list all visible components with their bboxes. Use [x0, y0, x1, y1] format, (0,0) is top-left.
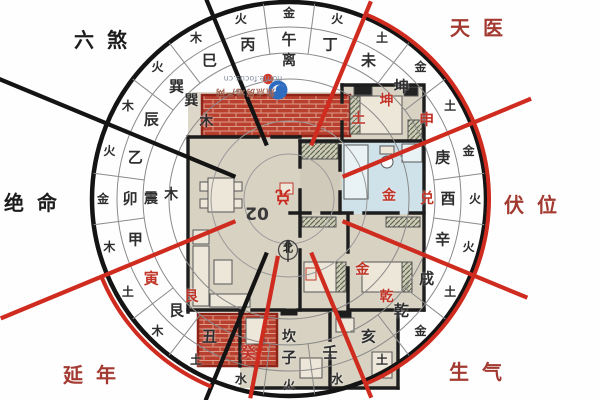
fengshui-bagua-floorplan-diagram: 午丁未坤申庚酉辛戌乾亥壬子癸丑艮寅甲卯乙辰巽巳丙金火土金土金火火土金土水火水土木… — [0, 0, 600, 400]
closet — [302, 217, 336, 227]
watermark-url: home.focus.cn — [224, 74, 283, 82]
closet — [386, 217, 420, 227]
north-label: 北 — [283, 245, 293, 255]
watermark-site: 焦点房地产网 — [215, 87, 275, 96]
sector-label-fuwei: 伏位 — [504, 195, 570, 215]
house-gua-stamp: 兑 — [275, 188, 291, 204]
coffee-table — [214, 260, 232, 284]
kitchen-counter — [300, 143, 338, 159]
sector-label-shengqi: 生气 — [449, 362, 515, 382]
sector-label-yannian: 延年 — [63, 365, 129, 385]
sector-label-jueming: 绝命 — [4, 193, 70, 213]
floor-plan — [188, 74, 424, 388]
sector-label-liusha: 六煞 — [74, 30, 140, 50]
sector-label-tianyi: 天医 — [450, 18, 516, 38]
sofa — [193, 246, 209, 306]
unit-number: 02 — [245, 204, 269, 221]
